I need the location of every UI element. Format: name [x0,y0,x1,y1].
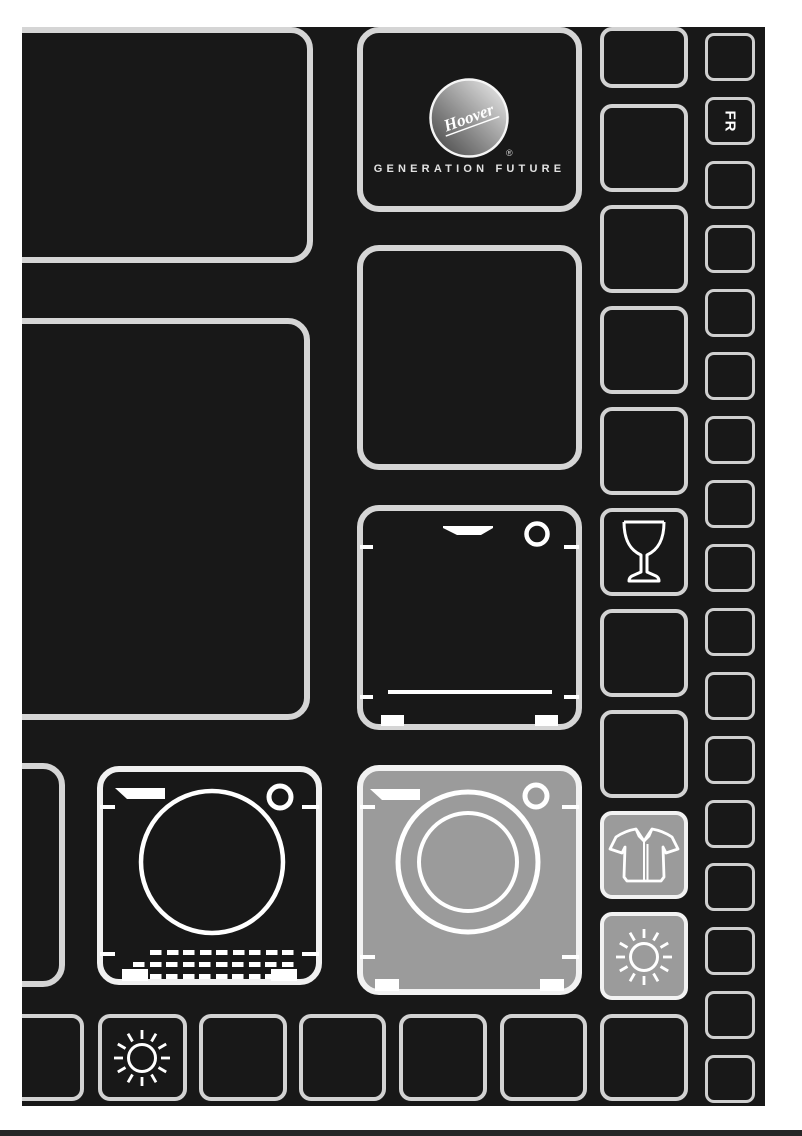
washing-machine-icon [357,765,582,995]
wine-glass-icon [600,508,688,596]
tile-blank [600,205,688,293]
tile-blank [600,1014,688,1101]
tile-blank [705,33,755,81]
tile-blank [600,306,688,394]
tile-language-fr: FR [705,97,755,145]
sun-icon [98,1014,187,1101]
tile-blank [705,608,755,656]
tile-blank [600,104,688,192]
dishwasher-icon [357,505,582,730]
tile-blank [705,1055,755,1103]
tile-blank [705,800,755,848]
tile-sun-right [600,912,688,1000]
tile-washing-machine-highlight [357,765,582,995]
tile-hoover-logo: Hoover ® GENERATION FUTURE [357,27,582,212]
tile-blank [600,710,688,798]
tile-blank [600,609,688,697]
manual-cover-page: Hoover ® GENERATION FUTURE [0,0,802,1136]
tile-blank [705,672,755,720]
tile-blank [22,318,310,720]
tile-blank [705,225,755,273]
tile-blank [705,991,755,1039]
sun-icon [600,912,688,1000]
tile-sun-bottom [98,1014,187,1101]
tile-blank [705,416,755,464]
tile-blank [500,1014,587,1101]
tile-blank [22,763,65,987]
tile-tumble-dryer [97,766,322,985]
tile-blank [22,1014,84,1101]
page-bottom-edge-bar [0,1130,802,1136]
tile-blank [22,27,313,263]
hoover-logo-icon: Hoover ® [357,27,582,212]
tile-blank [357,245,582,470]
tile-blank [705,544,755,592]
tile-blank [705,736,755,784]
tumble-dryer-icon [97,766,322,985]
tile-blank [705,161,755,209]
language-code: FR [722,110,739,132]
shirt-icon [600,811,688,899]
vent-grille [133,950,294,979]
tile-blank [299,1014,386,1101]
registered-mark: ® [506,148,513,158]
tile-blank [705,863,755,911]
tile-wine-glass [600,508,688,596]
tile-blank [705,352,755,400]
tile-shirt [600,811,688,899]
tile-blank [705,289,755,337]
brand-tagline: GENERATION FUTURE [357,163,582,175]
tile-blank [600,27,688,88]
tile-blank [705,927,755,975]
tile-dishwasher [357,505,582,730]
tile-blank [600,407,688,495]
tile-blank [705,480,755,528]
cover-artwork-board: Hoover ® GENERATION FUTURE [22,27,765,1106]
tile-blank [199,1014,287,1101]
tile-blank [399,1014,487,1101]
